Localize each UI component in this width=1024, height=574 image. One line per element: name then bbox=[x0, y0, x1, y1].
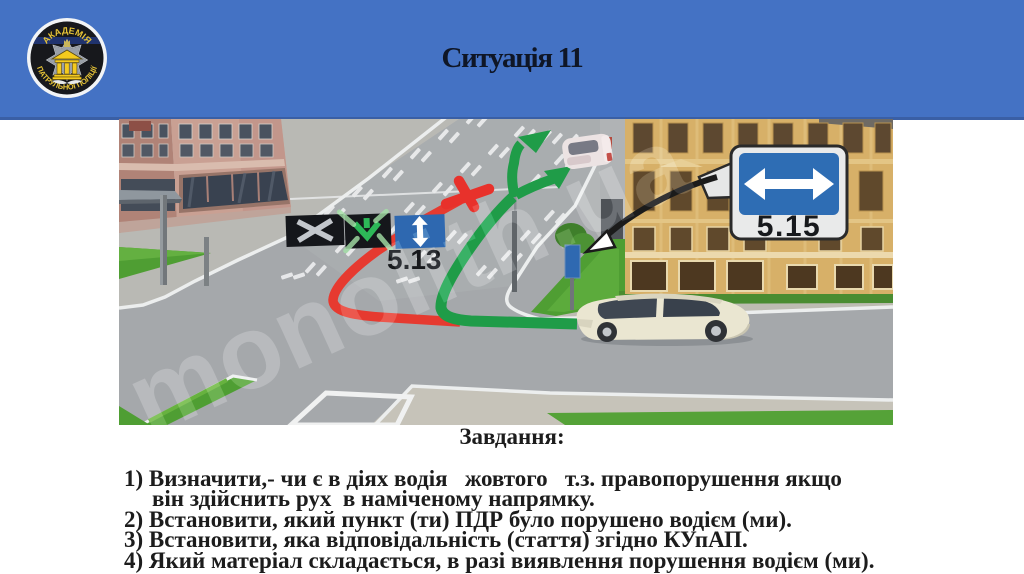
svg-text:5.15: 5.15 bbox=[757, 210, 821, 243]
